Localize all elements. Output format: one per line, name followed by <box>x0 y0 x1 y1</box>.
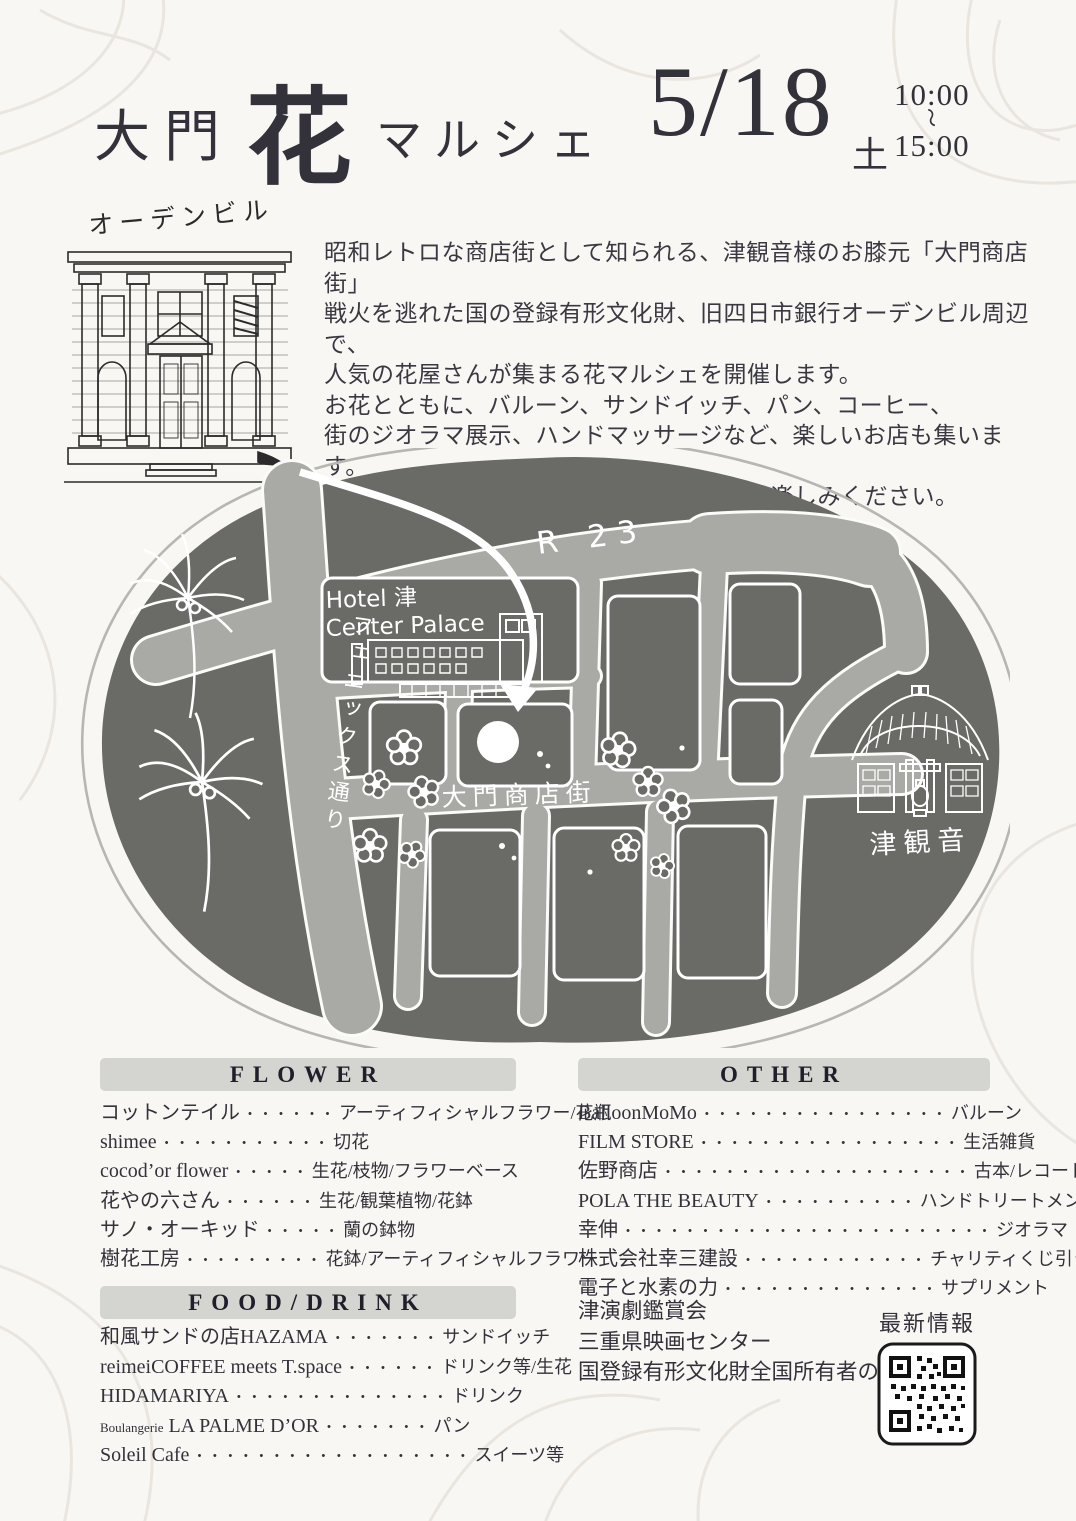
shop-desc: ハンドトリートメント <box>920 1188 1076 1215</box>
event-date: 5/18 <box>648 44 834 159</box>
shop-name: LA PALME D’OR <box>169 1413 319 1441</box>
food-drink-list: 和風サンドの店HAZAMA・・・・・・・サンドイッチ reimeiCOFFEE … <box>100 1324 540 1472</box>
title-area-name: 大門 <box>94 92 234 173</box>
shopping-street-label: 大門商店街 <box>441 778 597 812</box>
section-header-flower: FLOWER <box>100 1058 516 1091</box>
dot-leader: ・・・・・・・・・・・・・・・・・・・・・・・・ <box>621 1219 993 1246</box>
supporter-line: 国登録有形文化財全国所有者の会 <box>578 1357 908 1388</box>
title-hana-kanji: 花 <box>246 52 352 206</box>
tilde-mark: 〜 <box>921 107 940 130</box>
shop-desc: スイーツ等 <box>474 1442 564 1470</box>
shop-name: POLA THE BEAUTY <box>578 1188 759 1215</box>
arched-windows <box>98 362 260 440</box>
shop-desc: 生花/観葉植物/花鉢 <box>319 1188 473 1215</box>
list-item: shimee・・・・・・・・・・・切花 <box>100 1129 530 1158</box>
dot-leader: ・・・・・・・・・・・・・・・・・ <box>697 1131 961 1158</box>
shop-desc: 古本/レコード <box>974 1158 1076 1185</box>
dot-leader: ・・・・・・・・・・・・ <box>741 1248 927 1275</box>
list-item: FILM STORE・・・・・・・・・・・・・・・・・生活雑貨 <box>578 1129 1008 1158</box>
shop-name: 株式会社幸三建設 <box>578 1246 738 1273</box>
event-location-marker <box>477 721 519 763</box>
shop-name: 佐野商店 <box>578 1158 658 1185</box>
intro-line: 戦火を逃れた国の登録有形文化財、旧四日市銀行オーデンビル周辺で、 <box>324 299 1030 360</box>
list-item: POLA THE BEAUTY・・・・・・・・・・ハンドトリートメント <box>578 1188 1008 1217</box>
shop-name: cocod’or flower <box>100 1158 228 1185</box>
entrance <box>148 322 212 448</box>
upper-windows <box>102 292 258 336</box>
section-header-other: OTHER <box>578 1058 990 1091</box>
list-item: BalloonMoMo・・・・・・・・・・・・・・・・バルーン <box>578 1100 1008 1129</box>
dot-leader: ・・・・・・・・・・・・・・・・・・・・ <box>661 1160 971 1187</box>
shop-name: 幸伸 <box>578 1217 618 1244</box>
supporter-organizations: 津演劇鑑賞会 三重県映画センター 国登録有形文化財全国所有者の会 <box>578 1296 908 1388</box>
intro-line: 昭和レトロな商店街として知られる、津観音様のお膝元「大門商店街」 <box>324 238 1030 299</box>
temple-label: 津観音 <box>869 825 972 861</box>
shop-desc: サプリメント <box>941 1275 1049 1302</box>
shop-desc: 生花/枝物/フラワーベース <box>312 1158 519 1185</box>
supporter-line: 三重県映画センター <box>578 1327 908 1358</box>
dot-leader: ・・・・・・・ <box>331 1326 440 1354</box>
shop-name: shimee <box>100 1129 157 1156</box>
list-item: HIDAMARIYA・・・・・・・・・・・・・・ドリンク <box>100 1383 540 1413</box>
shop-desc: アーティフィシャルフラワー/花瓶 <box>339 1100 611 1127</box>
dot-leader: ・・・・・・ <box>223 1190 316 1217</box>
shop-desc: 花鉢/アーティフィシャルフラワー <box>326 1246 598 1273</box>
shop-desc: ドリンク <box>452 1383 524 1411</box>
list-item: cocod’or flower・・・・・生花/枝物/フラワーベース <box>100 1158 530 1187</box>
shop-name: 花やの六さん <box>100 1188 220 1215</box>
dot-leader: ・・・・・・・・・・・・・・ <box>232 1385 449 1413</box>
dot-leader: ・・・・・・・・・ <box>183 1248 323 1275</box>
list-item: 花やの六さん・・・・・・生花/観葉植物/花鉢 <box>100 1188 530 1217</box>
shop-desc: パン <box>433 1413 470 1441</box>
dot-leader: ・・・・・・ <box>345 1356 438 1384</box>
dot-leader: ・・・・・・・・・・ <box>762 1190 917 1217</box>
list-item: 佐野商店・・・・・・・・・・・・・・・・・・・・古本/レコード <box>578 1158 1008 1187</box>
shop-desc: 生活雑貨 <box>963 1129 1035 1156</box>
time-start: 10:00 <box>894 78 1004 111</box>
qr-code <box>877 1342 977 1446</box>
dot-leader: ・・・・・ <box>263 1219 341 1246</box>
list-item: 樹花工房・・・・・・・・・花鉢/アーティフィシャルフラワー <box>100 1246 530 1275</box>
shop-name-prefix: Boulangerie <box>100 1414 164 1442</box>
list-item: reimeiCOFFEE meets T.space・・・・・・ドリンク等/生花 <box>100 1354 540 1384</box>
shop-desc: バルーン <box>951 1100 1022 1127</box>
event-weekday: 土 <box>852 126 888 178</box>
latest-info-block: 最新情報 <box>874 1306 980 1451</box>
dot-leader: ・・・・・・・・・・・・・・・・・・ <box>192 1444 471 1472</box>
shop-desc: ジオラマ <box>996 1217 1068 1244</box>
dot-leader: ・・・・・・・・・・・・・・・・ <box>700 1102 948 1129</box>
event-area-map: Hotel 津 Center Palace R 23 大門商店街 津観音 <box>70 448 1010 1048</box>
shop-desc: サンドイッチ <box>442 1324 550 1352</box>
shop-name: BalloonMoMo <box>578 1100 697 1127</box>
list-item: 株式会社幸三建設・・・・・・・・・・・・チャリティくじ引き <box>578 1246 1008 1275</box>
shop-desc: チャリティくじ引き <box>930 1246 1076 1273</box>
dot-leader: ・・・・・・ <box>243 1102 336 1129</box>
shop-name: サノ・オーキッド <box>100 1217 260 1244</box>
dot-leader: ・・・・・・・・・・・ <box>160 1131 331 1158</box>
list-item: Soleil Cafe・・・・・・・・・・・・・・・・・・スイーツ等 <box>100 1442 540 1472</box>
flower-list: コットンテイル・・・・・・アーティフィシャルフラワー/花瓶 shimee・・・・… <box>100 1100 530 1275</box>
flyer-poster: 大門 花 マルシェ 5/18 土 10:00 〜 15:00 オーデンビル <box>0 0 1076 1521</box>
intro-line: 人気の花屋さんが集まる花マルシェを開催します。 <box>324 360 1030 391</box>
other-list: BalloonMoMo・・・・・・・・・・・・・・・・バルーン FILM STO… <box>578 1100 1008 1304</box>
time-end: 15:00 <box>894 129 1004 162</box>
list-item: 和風サンドの店HAZAMA・・・・・・・サンドイッチ <box>100 1324 540 1354</box>
shop-name: HIDAMARIYA <box>100 1383 229 1411</box>
dot-leader: ・・・・・ <box>231 1160 309 1187</box>
event-time-range: 10:00 〜 15:00 <box>894 78 1004 162</box>
hotel-label-line1: Hotel 津 <box>325 585 417 614</box>
supporter-line: 津演劇鑑賞会 <box>578 1296 908 1327</box>
shop-desc: ドリンク等/生花 <box>441 1354 572 1382</box>
list-item: サノ・オーキッド・・・・・蘭の鉢物 <box>100 1217 530 1246</box>
list-item: BoulangerieLA PALME D’OR・・・・・・・パン <box>100 1413 540 1443</box>
shop-name: コットンテイル <box>100 1100 240 1127</box>
list-item: コットンテイル・・・・・・アーティフィシャルフラワー/花瓶 <box>100 1100 530 1129</box>
qr-caption: 最新情報 <box>874 1306 980 1338</box>
shop-name: Soleil Cafe <box>100 1442 189 1470</box>
shop-name: 樹花工房 <box>100 1246 180 1273</box>
shop-name: FILM STORE <box>578 1129 694 1156</box>
title-marche: マルシェ <box>376 104 608 170</box>
dot-leader: ・・・・・・・ <box>322 1415 431 1443</box>
shop-name: 和風サンドの店HAZAMA <box>100 1324 328 1352</box>
shop-desc: 切花 <box>333 1129 369 1156</box>
section-header-food-drink: FOOD/DRINK <box>100 1286 516 1319</box>
intro-line: お花とともに、バルーン、サンドイッチ、パン、コーヒー、 <box>324 391 1030 422</box>
shop-desc: 蘭の鉢物 <box>343 1217 415 1244</box>
list-item: 幸伸・・・・・・・・・・・・・・・・・・・・・・・・ジオラマ <box>578 1217 1008 1246</box>
shop-name: reimeiCOFFEE meets T.space <box>100 1354 342 1382</box>
